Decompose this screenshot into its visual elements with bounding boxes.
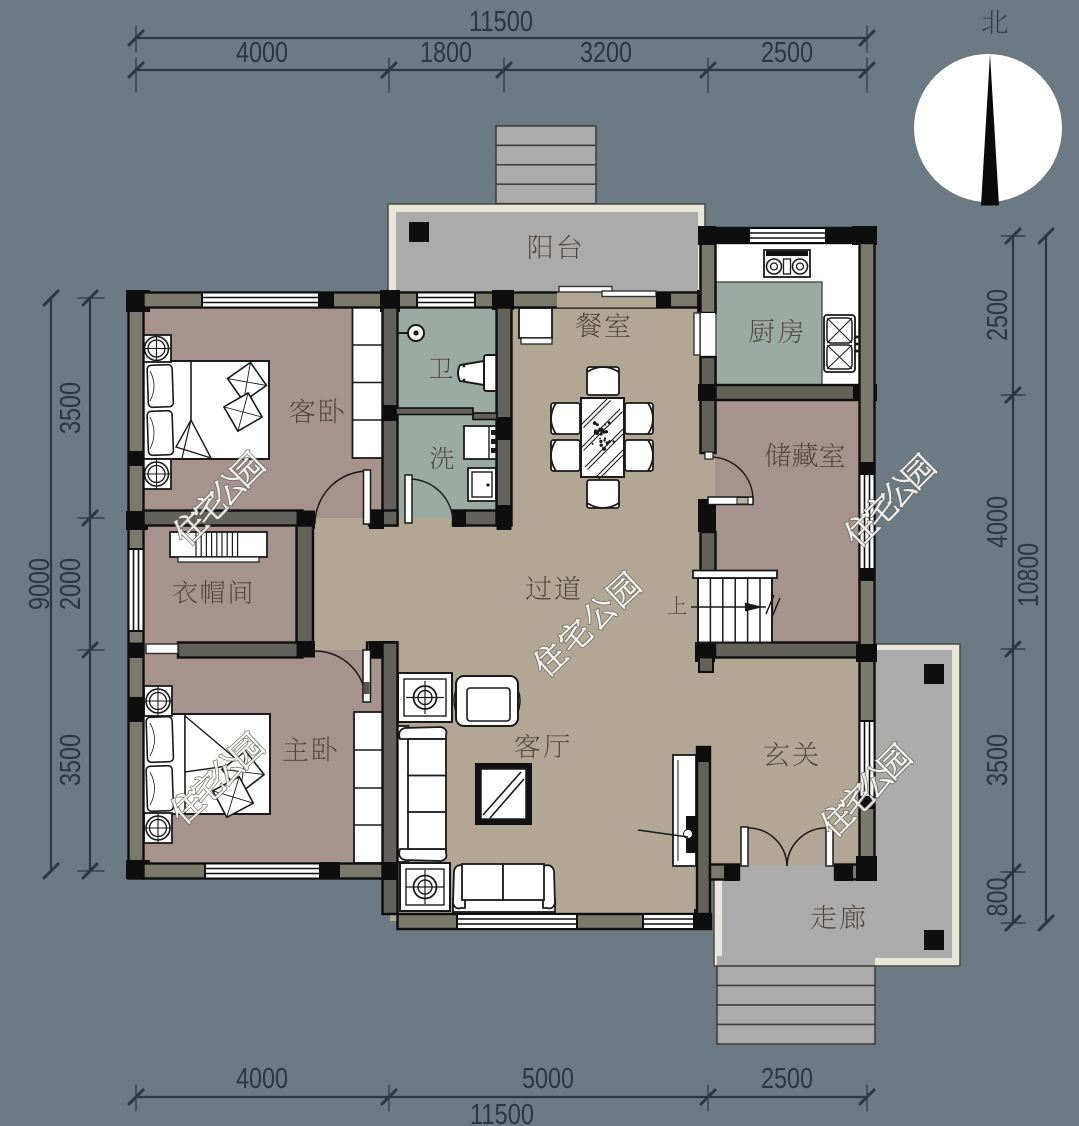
- svg-text:3200: 3200: [580, 37, 632, 69]
- svg-text:2500: 2500: [982, 289, 1014, 341]
- svg-text:3500: 3500: [55, 382, 87, 434]
- svg-text:10800: 10800: [1013, 543, 1045, 607]
- svg-text:11500: 11500: [469, 6, 533, 38]
- svg-text:2000: 2000: [55, 558, 87, 610]
- svg-text:9000: 9000: [24, 558, 56, 610]
- svg-text:2500: 2500: [761, 1063, 813, 1095]
- svg-text:11500: 11500: [470, 1099, 534, 1126]
- svg-text:2500: 2500: [761, 37, 813, 69]
- svg-text:5000: 5000: [522, 1063, 574, 1095]
- svg-text:4000: 4000: [236, 37, 288, 69]
- svg-text:4000: 4000: [982, 496, 1014, 548]
- svg-text:1800: 1800: [420, 37, 472, 69]
- svg-text:3500: 3500: [55, 734, 87, 786]
- svg-text:800: 800: [982, 878, 1014, 917]
- svg-text:4000: 4000: [236, 1063, 288, 1095]
- svg-text:3500: 3500: [982, 734, 1014, 786]
